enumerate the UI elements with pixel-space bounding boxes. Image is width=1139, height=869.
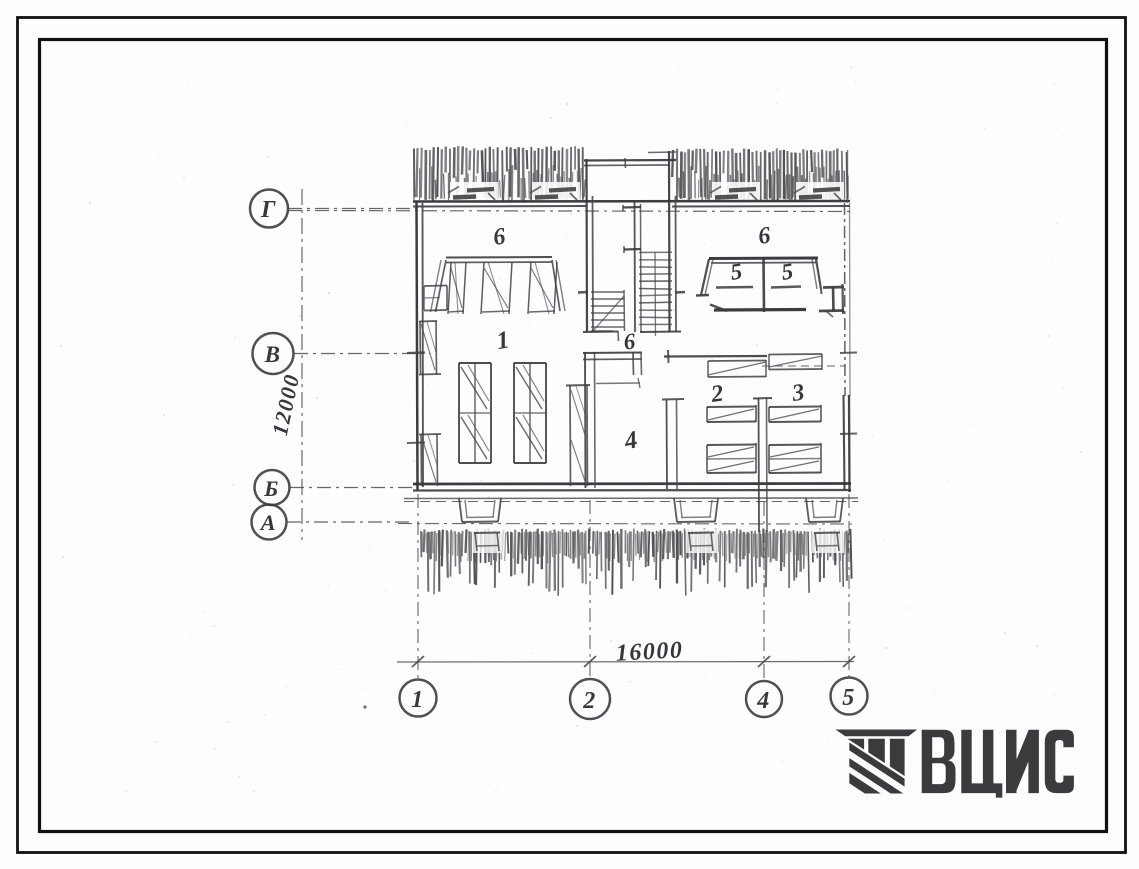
svg-text:В: В: [264, 342, 282, 367]
svg-text:6: 6: [757, 222, 774, 250]
svg-text:3: 3: [790, 379, 808, 407]
svg-text:12000: 12000: [267, 371, 304, 437]
svg-text:2: 2: [582, 688, 597, 714]
svg-text:1: 1: [411, 687, 425, 713]
svg-text:4: 4: [756, 688, 771, 714]
svg-text:1: 1: [494, 326, 512, 355]
svg-text:6: 6: [622, 328, 638, 354]
svg-text:Г: Г: [260, 197, 277, 223]
svg-text:16000: 16000: [615, 637, 684, 666]
svg-text:6: 6: [492, 223, 509, 251]
svg-text:2: 2: [709, 380, 727, 408]
svg-text:Б: Б: [263, 476, 279, 501]
svg-text:4: 4: [621, 426, 640, 455]
svg-text:5: 5: [842, 685, 856, 711]
svg-text:А: А: [259, 510, 277, 535]
